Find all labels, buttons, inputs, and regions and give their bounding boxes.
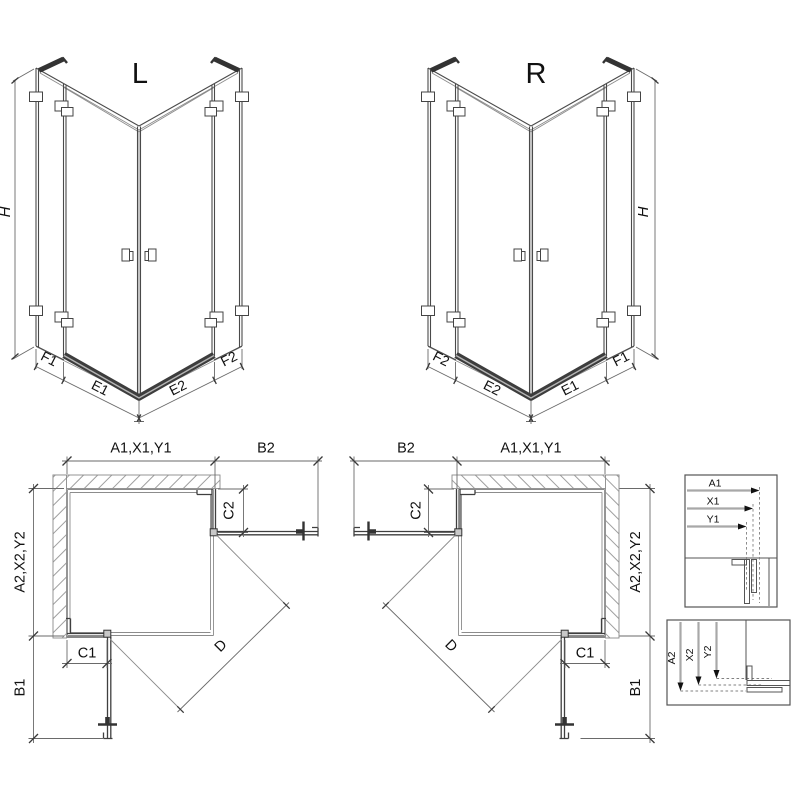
dim-label-c2-right: C2 bbox=[409, 501, 425, 520]
hinge-icon bbox=[62, 319, 74, 328]
detail-label-x1: X1 bbox=[707, 496, 720, 508]
detail-label-a2: A2 bbox=[666, 651, 678, 664]
dim-label-c1-left: C1 bbox=[78, 646, 97, 662]
detail-box-width bbox=[685, 475, 777, 607]
fixed-glass-panels bbox=[66, 489, 216, 637]
shower-enclosure-technical-drawing: L H F1 E1 E2 F2 R H F2 E2 E1 F1 A1,X1,Y1… bbox=[0, 0, 800, 800]
dim-label-a1x1y1-right: A1,X1,Y1 bbox=[500, 441, 561, 457]
wall-side-hatched bbox=[53, 475, 67, 638]
drawing-svg: L H F1 E1 E2 F2 R H F2 E2 E1 F1 A1,X1,Y1… bbox=[0, 0, 800, 800]
detail-label-y2: Y2 bbox=[702, 645, 714, 658]
tray-outline bbox=[68, 490, 214, 636]
dim-label-f1-left: F1 bbox=[38, 348, 60, 370]
dim-label-b1-left: B1 bbox=[13, 679, 29, 697]
door-handle-icon bbox=[145, 252, 149, 261]
iso-view-left-art bbox=[12, 58, 249, 425]
dim-label-b2-right: B2 bbox=[397, 441, 415, 457]
hinge-pivot-icon bbox=[104, 630, 111, 637]
dim-label-c2-left: C2 bbox=[222, 501, 238, 520]
dim-label-a2x2y2-right: A2,X2,Y2 bbox=[628, 531, 644, 592]
diagonal-dimension-line bbox=[178, 603, 290, 713]
plan-view-left-art bbox=[53, 457, 323, 739]
dim-label-height-left: H bbox=[0, 206, 14, 217]
plan-view-right-art bbox=[350, 457, 620, 739]
dim-label-a1x1y1-left: A1,X1,Y1 bbox=[110, 441, 171, 457]
wall-bracket-icon bbox=[30, 92, 43, 102]
dim-label-a2x2y2-left: A2,X2,Y2 bbox=[13, 531, 29, 592]
dim-label-b1-right: B1 bbox=[628, 679, 644, 697]
detail-box-depth bbox=[667, 620, 790, 705]
door-handle-icon bbox=[122, 249, 130, 261]
dim-label-height-right: H bbox=[635, 206, 652, 217]
detail-label-a1: A1 bbox=[709, 478, 722, 490]
dim-label-f1-right: F1 bbox=[610, 348, 632, 370]
top-cap-left bbox=[39, 59, 64, 71]
door-handle-icon bbox=[130, 252, 134, 261]
hinge-icon bbox=[205, 319, 217, 328]
top-cap-right bbox=[215, 59, 240, 71]
dim-label-c1-right: C1 bbox=[576, 646, 595, 662]
door-handle-icon bbox=[149, 249, 157, 261]
dim-label-d-left: D bbox=[212, 637, 231, 656]
door-handle-icon bbox=[98, 522, 304, 725]
view-label-left: L bbox=[132, 58, 148, 90]
wall-bracket-icon bbox=[30, 306, 43, 316]
hinge-icon bbox=[205, 108, 217, 117]
hinge-icon bbox=[62, 108, 74, 117]
dim-label-f2-right: F2 bbox=[430, 348, 452, 370]
door-swing-45 bbox=[110, 535, 287, 710]
view-label-right: R bbox=[526, 58, 547, 90]
detail-label-x2: X2 bbox=[684, 648, 696, 661]
door-handle-icon bbox=[108, 532, 304, 725]
dim-label-d-right: D bbox=[441, 637, 460, 656]
wall-bracket-icon bbox=[236, 306, 249, 316]
detail-label-y1: Y1 bbox=[707, 514, 720, 526]
dim-label-b2-left: B2 bbox=[257, 441, 275, 457]
iso-view-right-art bbox=[422, 58, 659, 425]
wall-top-hatched bbox=[53, 475, 220, 489]
dim-label-f2-left: F2 bbox=[218, 348, 240, 370]
wall-bracket-icon bbox=[236, 92, 249, 102]
